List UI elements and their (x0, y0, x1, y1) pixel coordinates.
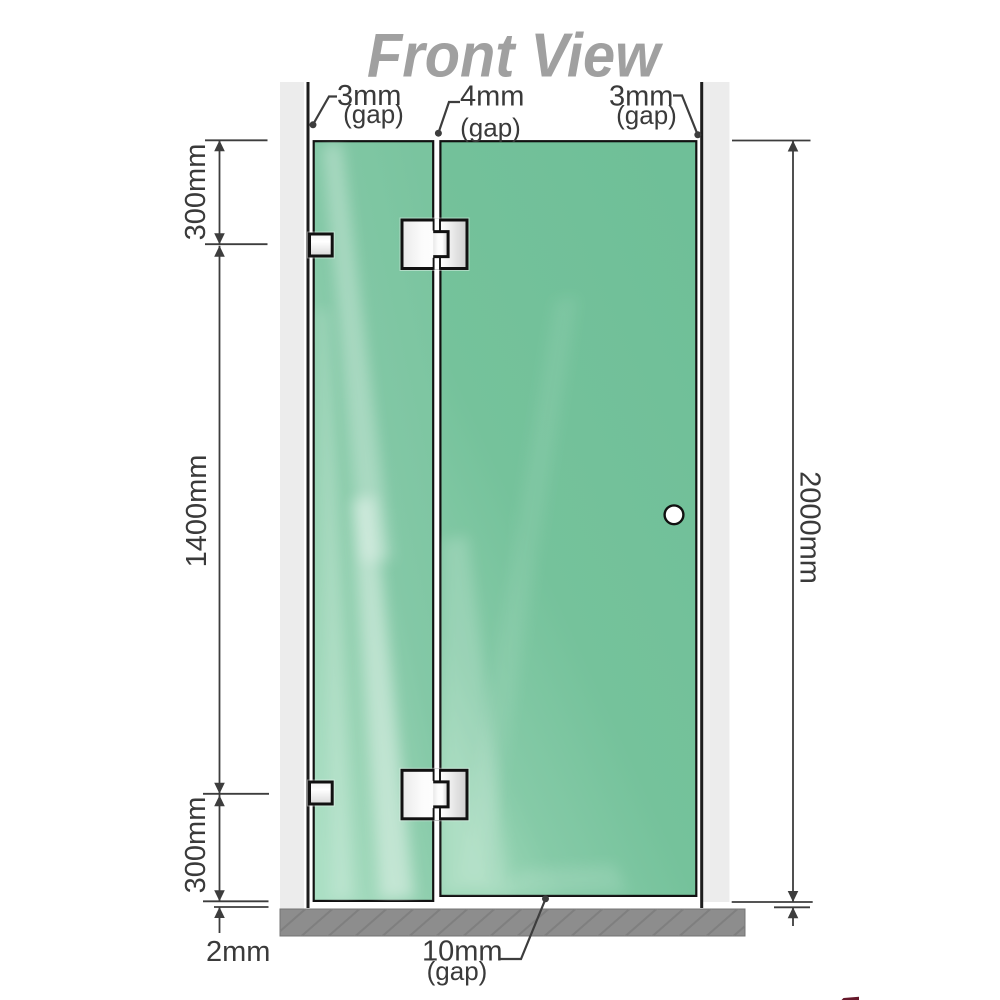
svg-text:(gap): (gap) (343, 99, 404, 129)
svg-text:1400mm: 1400mm (181, 455, 213, 568)
svg-text:2mm: 2mm (206, 936, 270, 968)
svg-text:(gap): (gap) (460, 113, 521, 143)
svg-text:Front View: Front View (367, 22, 664, 91)
svg-text:300mm: 300mm (180, 144, 212, 241)
svg-text:2000mm: 2000mm (794, 471, 826, 584)
svg-text:(gap): (gap) (616, 100, 677, 130)
svg-text:300mm: 300mm (180, 797, 212, 894)
svg-text:(gap): (gap) (427, 956, 488, 986)
